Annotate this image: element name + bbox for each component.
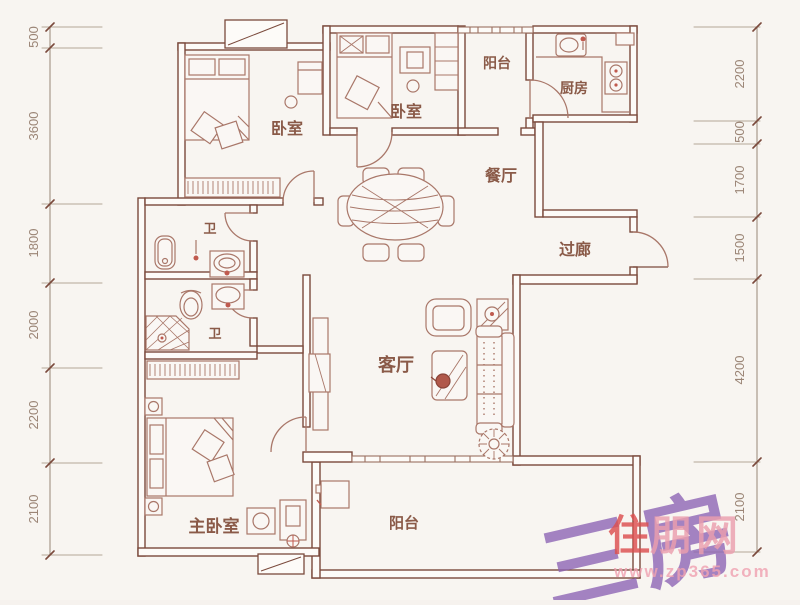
dimension-chain-right: 2200 500 1700 1500 4200 2100: [694, 23, 761, 556]
kitchen-sink-icon: [556, 34, 586, 56]
dim-right-1: 2200: [732, 60, 747, 89]
dim-left-6: 2100: [26, 495, 41, 524]
dining-table-icon: [338, 168, 454, 261]
room-label-bathroom-1: 卫: [203, 221, 216, 236]
room-label-kitchen: 厨房: [560, 80, 588, 96]
door-swing-icon-bathroom-1: [225, 213, 253, 241]
sink-icon-bathroom-1: [210, 251, 244, 277]
dimension-chain-left: 500 3600 1800 2000 2200 2100: [26, 23, 102, 559]
room-label-balcony-top: 阳台: [483, 55, 511, 71]
floor-drain-icon: [194, 240, 199, 261]
stool-icon-master: [247, 508, 275, 534]
dim-left-1: 500: [26, 26, 41, 48]
stove-icon: [605, 62, 627, 94]
wardrobe-icon-bedroom-1: [185, 178, 280, 197]
dresser-icon-bedroom-2: [400, 47, 430, 92]
site-url: www.zp365.com: [613, 562, 771, 581]
dresser-icon-master: [280, 500, 306, 547]
dim-left-4: 2000: [26, 311, 41, 340]
floor-plan: 500 3600 1800 2000 2200 2100 2200 500 17…: [0, 0, 800, 600]
room-label-corridor: 过廊: [559, 240, 591, 259]
nightstand-icon-1: [145, 398, 162, 415]
desk-icon-bedroom-1: [285, 62, 322, 108]
site-logo-rest: 朋网: [650, 512, 742, 559]
room-label-bathroom-2: 卫: [208, 326, 221, 341]
room-label-living-room: 客厅: [378, 354, 414, 375]
toilet-icon: [180, 291, 202, 320]
tv-cabinet-icon: [309, 318, 330, 430]
room-label-dining-room: 餐厅: [484, 166, 517, 185]
washing-machine-icon: [316, 481, 349, 508]
dim-left-5: 2200: [26, 401, 41, 430]
bed-icon-bedroom-2: [337, 33, 392, 118]
sink-icon-bathroom-2: [212, 284, 244, 309]
dim-left-2: 3600: [26, 112, 41, 141]
side-table-lamp-icon: [477, 299, 508, 330]
door-swing-icon-master-bedroom: [271, 417, 306, 452]
door-swing-icon-bedroom-2: [357, 132, 392, 167]
coffee-table-icon: [431, 351, 467, 400]
floor-plan-page: 500 3600 1800 2000 2200 2100 2200 500 17…: [0, 0, 800, 600]
bathtub-icon: [155, 236, 175, 269]
armchair-icon: [426, 299, 471, 336]
dim-right-3: 1700: [732, 166, 747, 195]
dim-right-5: 4200: [732, 356, 747, 385]
room-label-bedroom-1: 卧室: [271, 119, 303, 138]
shower-icon: [146, 316, 189, 350]
dim-right-2: 500: [732, 121, 747, 143]
site-logo-first-char: 住: [608, 512, 650, 559]
dim-right-4: 1500: [732, 234, 747, 263]
room-label-bedroom-2: 卧室: [390, 102, 422, 121]
dim-left-3: 1800: [26, 229, 41, 258]
room-label-balcony-bottom: 阳台: [389, 514, 419, 532]
wardrobe-icon-master: [147, 361, 239, 379]
room-label-master-bedroom: 主卧室: [189, 516, 240, 536]
door-swing-icon-bedroom-1: [283, 171, 314, 202]
closet-icon-bedroom-2: [435, 33, 458, 90]
bed-icon-master: [147, 418, 234, 496]
sofa-icon: [476, 326, 514, 434]
plant-icon: [479, 429, 509, 459]
door-swing-icon-entry: [633, 232, 668, 267]
nightstand-icon-2: [145, 498, 162, 515]
bed-icon-bedroom-1: [185, 55, 249, 149]
